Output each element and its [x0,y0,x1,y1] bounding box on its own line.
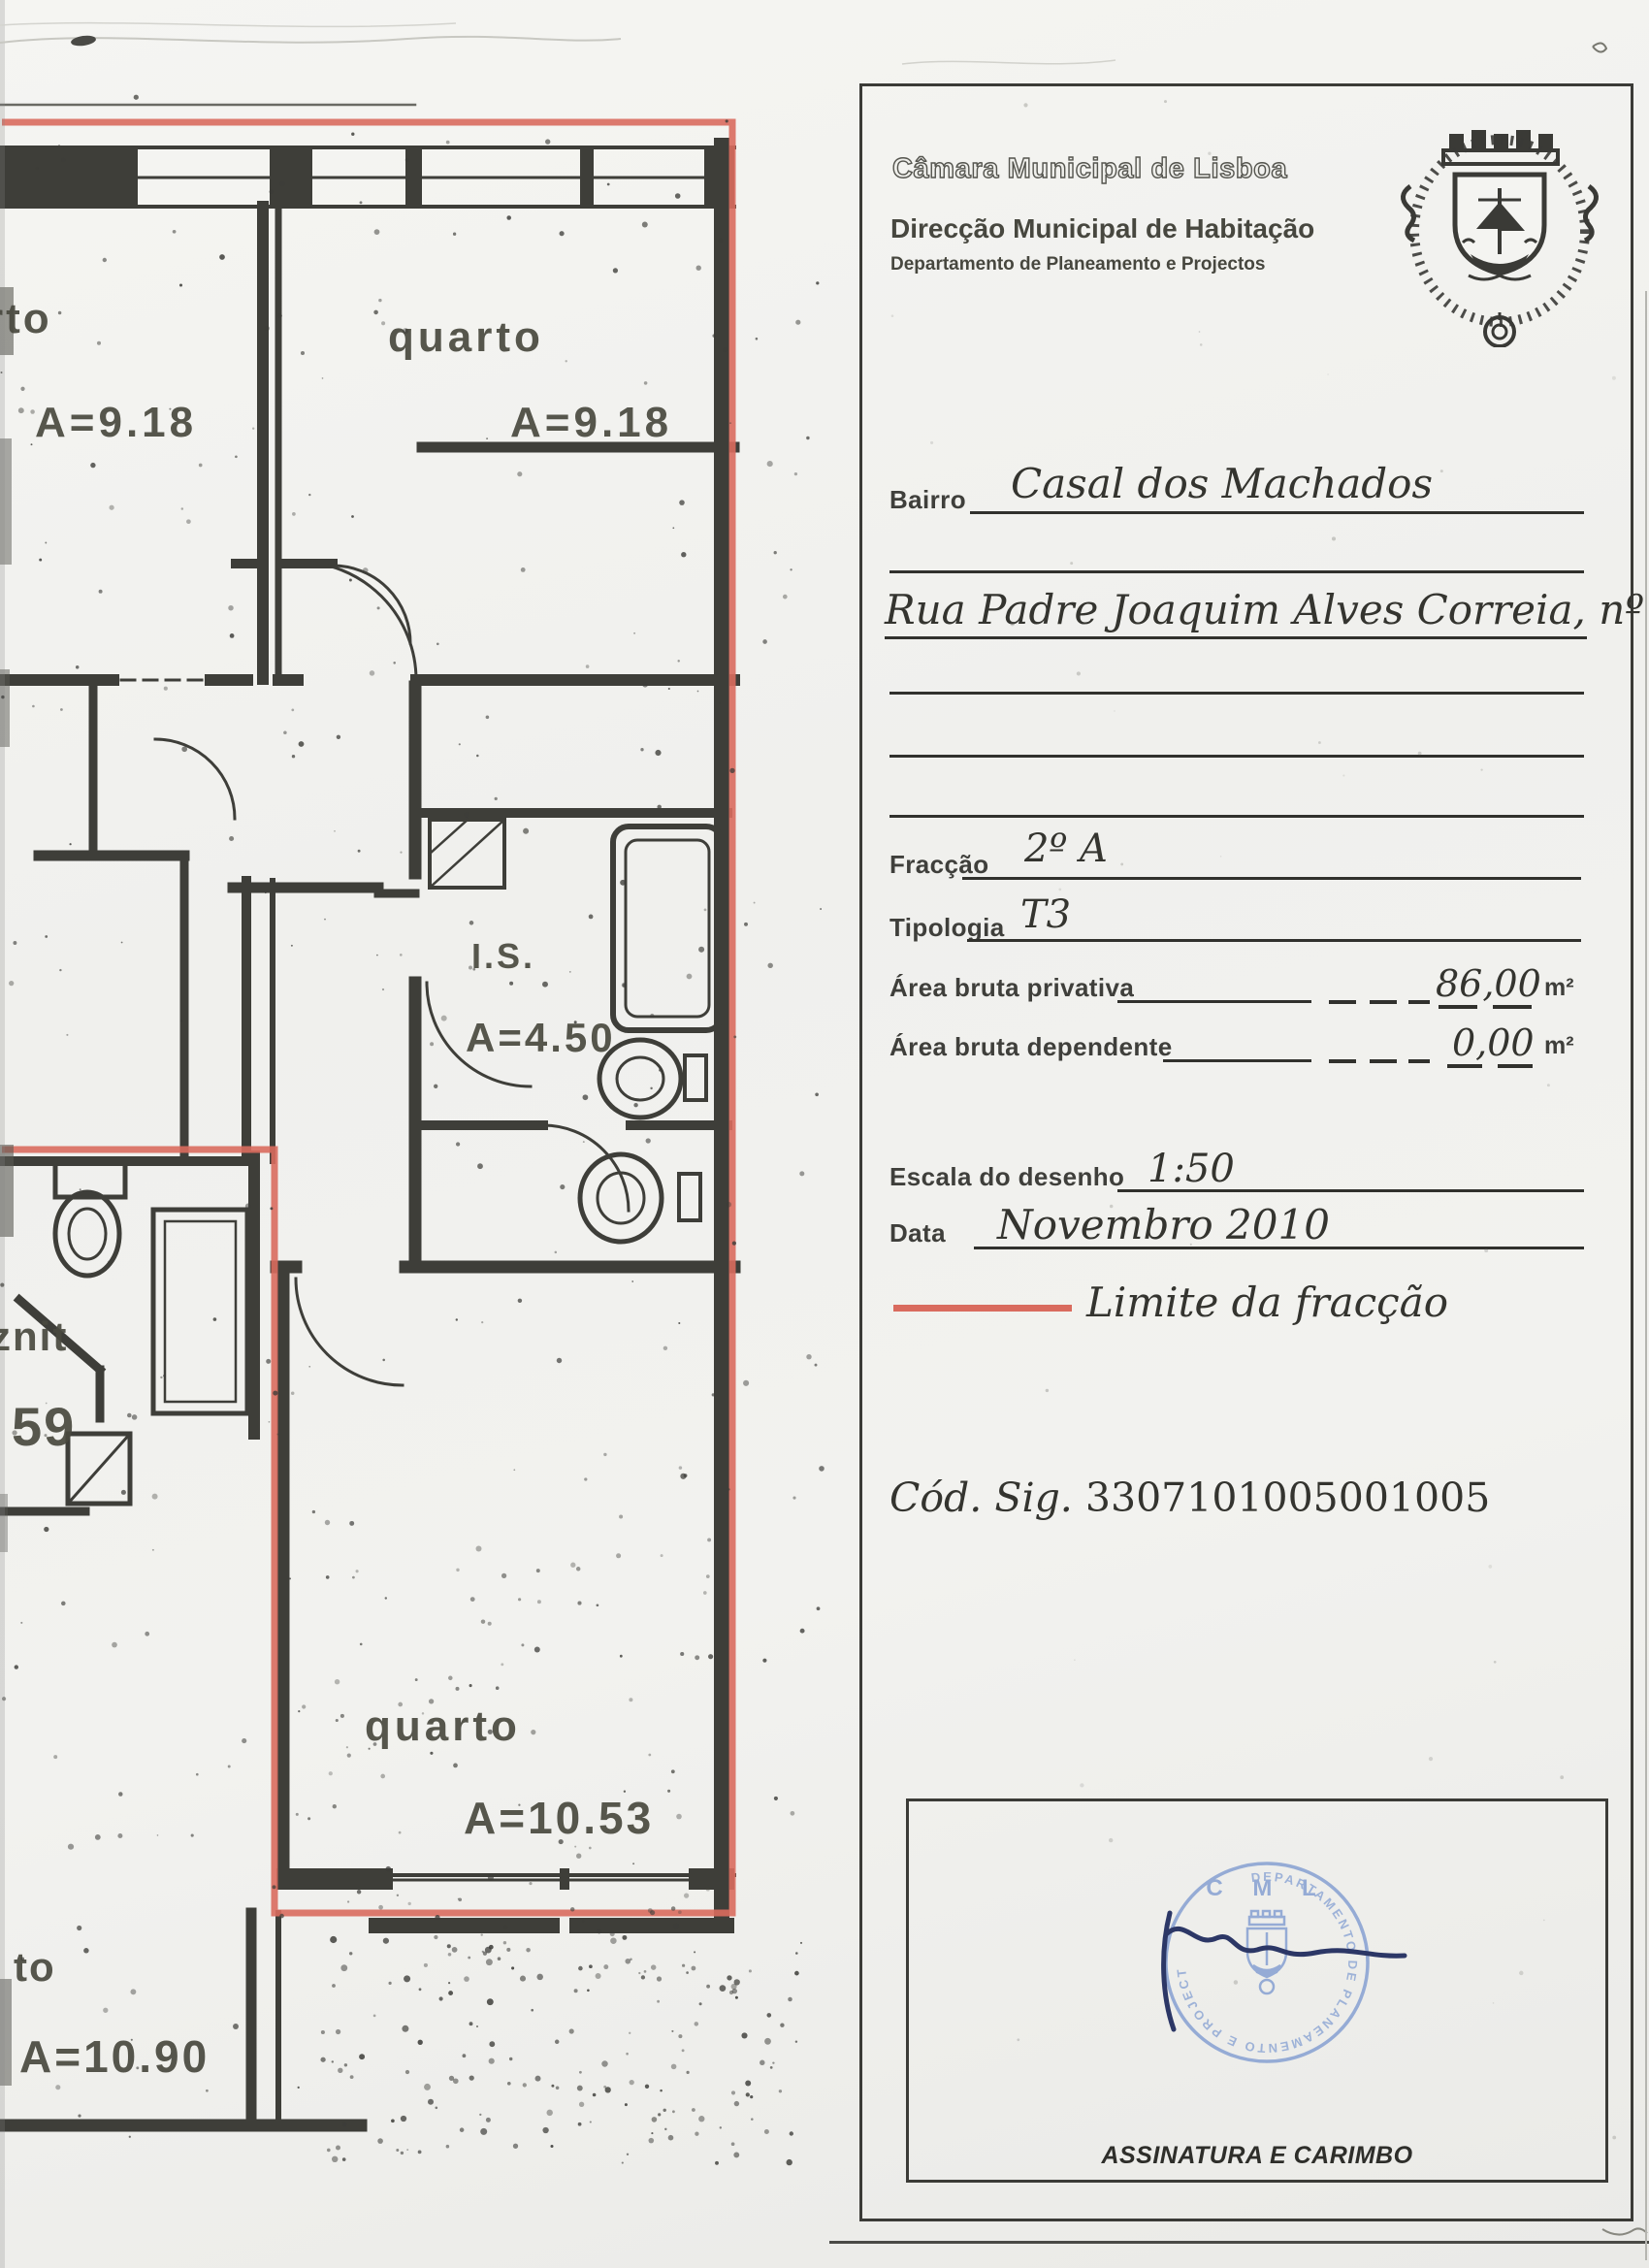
ink-blot [70,34,96,48]
corner-mark [1593,43,1606,51]
corner-mark [1602,2228,1647,2234]
paper-crease [902,60,1115,64]
handwritten-signature [1164,1913,1405,2029]
scan-overlay-marks [0,0,1649,2268]
paper-crease [0,23,456,27]
scanned-document-page: rto A=9.18 quarto A=9.18 I.S. A=4.50 zni… [0,0,1649,2268]
panel-noise [891,100,1616,2139]
